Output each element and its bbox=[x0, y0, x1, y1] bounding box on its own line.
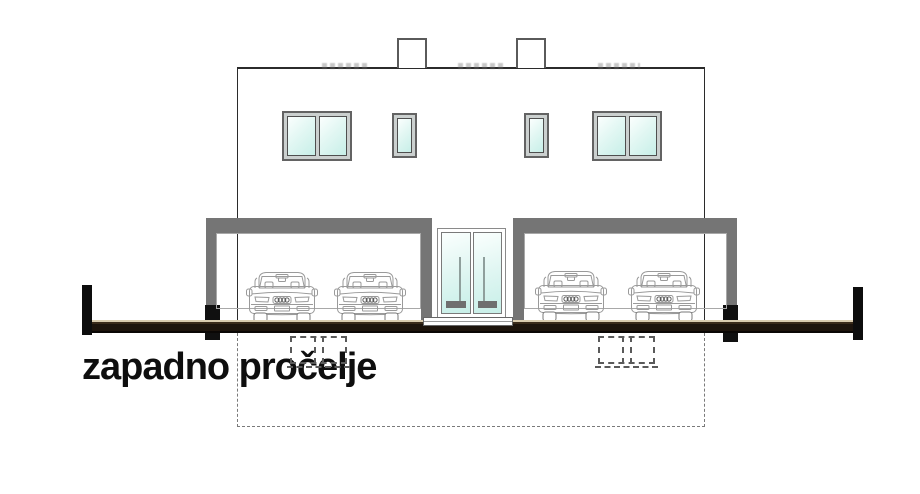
door-leaf-left bbox=[441, 232, 471, 314]
door-sill-step bbox=[423, 317, 513, 326]
watermark-smudge bbox=[322, 63, 368, 69]
elevation-drawing: zapadno pročelje bbox=[0, 0, 920, 494]
car-4 bbox=[628, 269, 700, 322]
section-post-right bbox=[853, 287, 863, 340]
below-grade-dashed-bottom bbox=[237, 426, 705, 427]
foundation-footing-right bbox=[598, 336, 655, 364]
car-2 bbox=[334, 270, 406, 323]
window-pane bbox=[529, 118, 544, 153]
chimney-right bbox=[516, 38, 546, 68]
foundation-footing-left bbox=[290, 336, 347, 364]
canopy-post bbox=[206, 218, 216, 305]
door-handle bbox=[459, 257, 461, 301]
canopy-post bbox=[513, 218, 524, 323]
canopy-post bbox=[727, 218, 737, 305]
canopy-beam bbox=[206, 218, 432, 233]
window-small-right bbox=[524, 113, 549, 158]
section-post-left bbox=[82, 285, 92, 335]
footing-base-line bbox=[595, 366, 658, 368]
car-3 bbox=[535, 269, 607, 322]
window-large-right bbox=[592, 111, 662, 161]
door-kick-plate bbox=[446, 301, 466, 308]
car-1 bbox=[246, 270, 318, 323]
window-pane bbox=[287, 116, 316, 156]
canopy-post bbox=[421, 218, 432, 323]
footing-core-lines bbox=[314, 336, 324, 364]
footing-core-lines bbox=[622, 336, 632, 364]
footing-base-line bbox=[287, 366, 350, 368]
window-pane bbox=[397, 118, 412, 153]
door-handle bbox=[483, 257, 485, 301]
window-pane bbox=[629, 116, 658, 156]
window-large-left bbox=[282, 111, 352, 161]
chimney-left bbox=[397, 38, 427, 68]
window-pane bbox=[597, 116, 626, 156]
canopy-beam bbox=[513, 218, 737, 233]
entrance-door bbox=[437, 228, 506, 318]
window-small-left bbox=[392, 113, 417, 158]
below-grade-dashed-right bbox=[704, 333, 705, 427]
watermark-smudge bbox=[458, 63, 504, 69]
watermark-smudge bbox=[598, 63, 640, 69]
window-pane bbox=[319, 116, 348, 156]
door-leaf-right bbox=[473, 232, 503, 314]
door-kick-plate bbox=[478, 301, 498, 308]
